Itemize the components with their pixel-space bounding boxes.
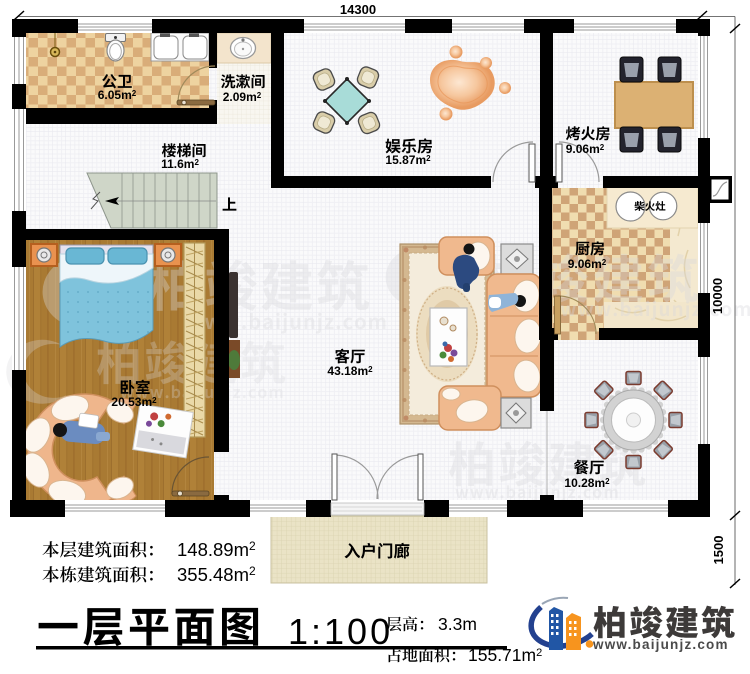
svg-text:1:100: 1:100 (288, 611, 393, 652)
svg-text:6.05m2: 6.05m2 (98, 88, 137, 102)
svg-text:155.71m2: 155.71m2 (468, 645, 542, 665)
svg-text:9.06m2: 9.06m2 (566, 142, 605, 156)
svg-text:www.baijunjz.com: www.baijunjz.com (592, 637, 729, 652)
svg-text:148.89m2: 148.89m2 (177, 539, 256, 560)
svg-text:43.18m2: 43.18m2 (327, 364, 373, 378)
svg-text:9.06m2: 9.06m2 (568, 257, 607, 271)
svg-text:15.87m2: 15.87m2 (385, 153, 431, 167)
svg-text:2.09m2: 2.09m2 (223, 90, 262, 104)
svg-text:10.28m2: 10.28m2 (564, 476, 610, 490)
svg-text:14300: 14300 (340, 2, 376, 17)
svg-text:11.6m2: 11.6m2 (161, 157, 199, 171)
svg-text:20.53m2: 20.53m2 (111, 395, 157, 409)
svg-text:1500: 1500 (711, 536, 726, 565)
svg-text:3.3m: 3.3m (438, 614, 477, 634)
svg-text:10000: 10000 (710, 278, 725, 314)
svg-text:355.48m2: 355.48m2 (177, 564, 256, 585)
